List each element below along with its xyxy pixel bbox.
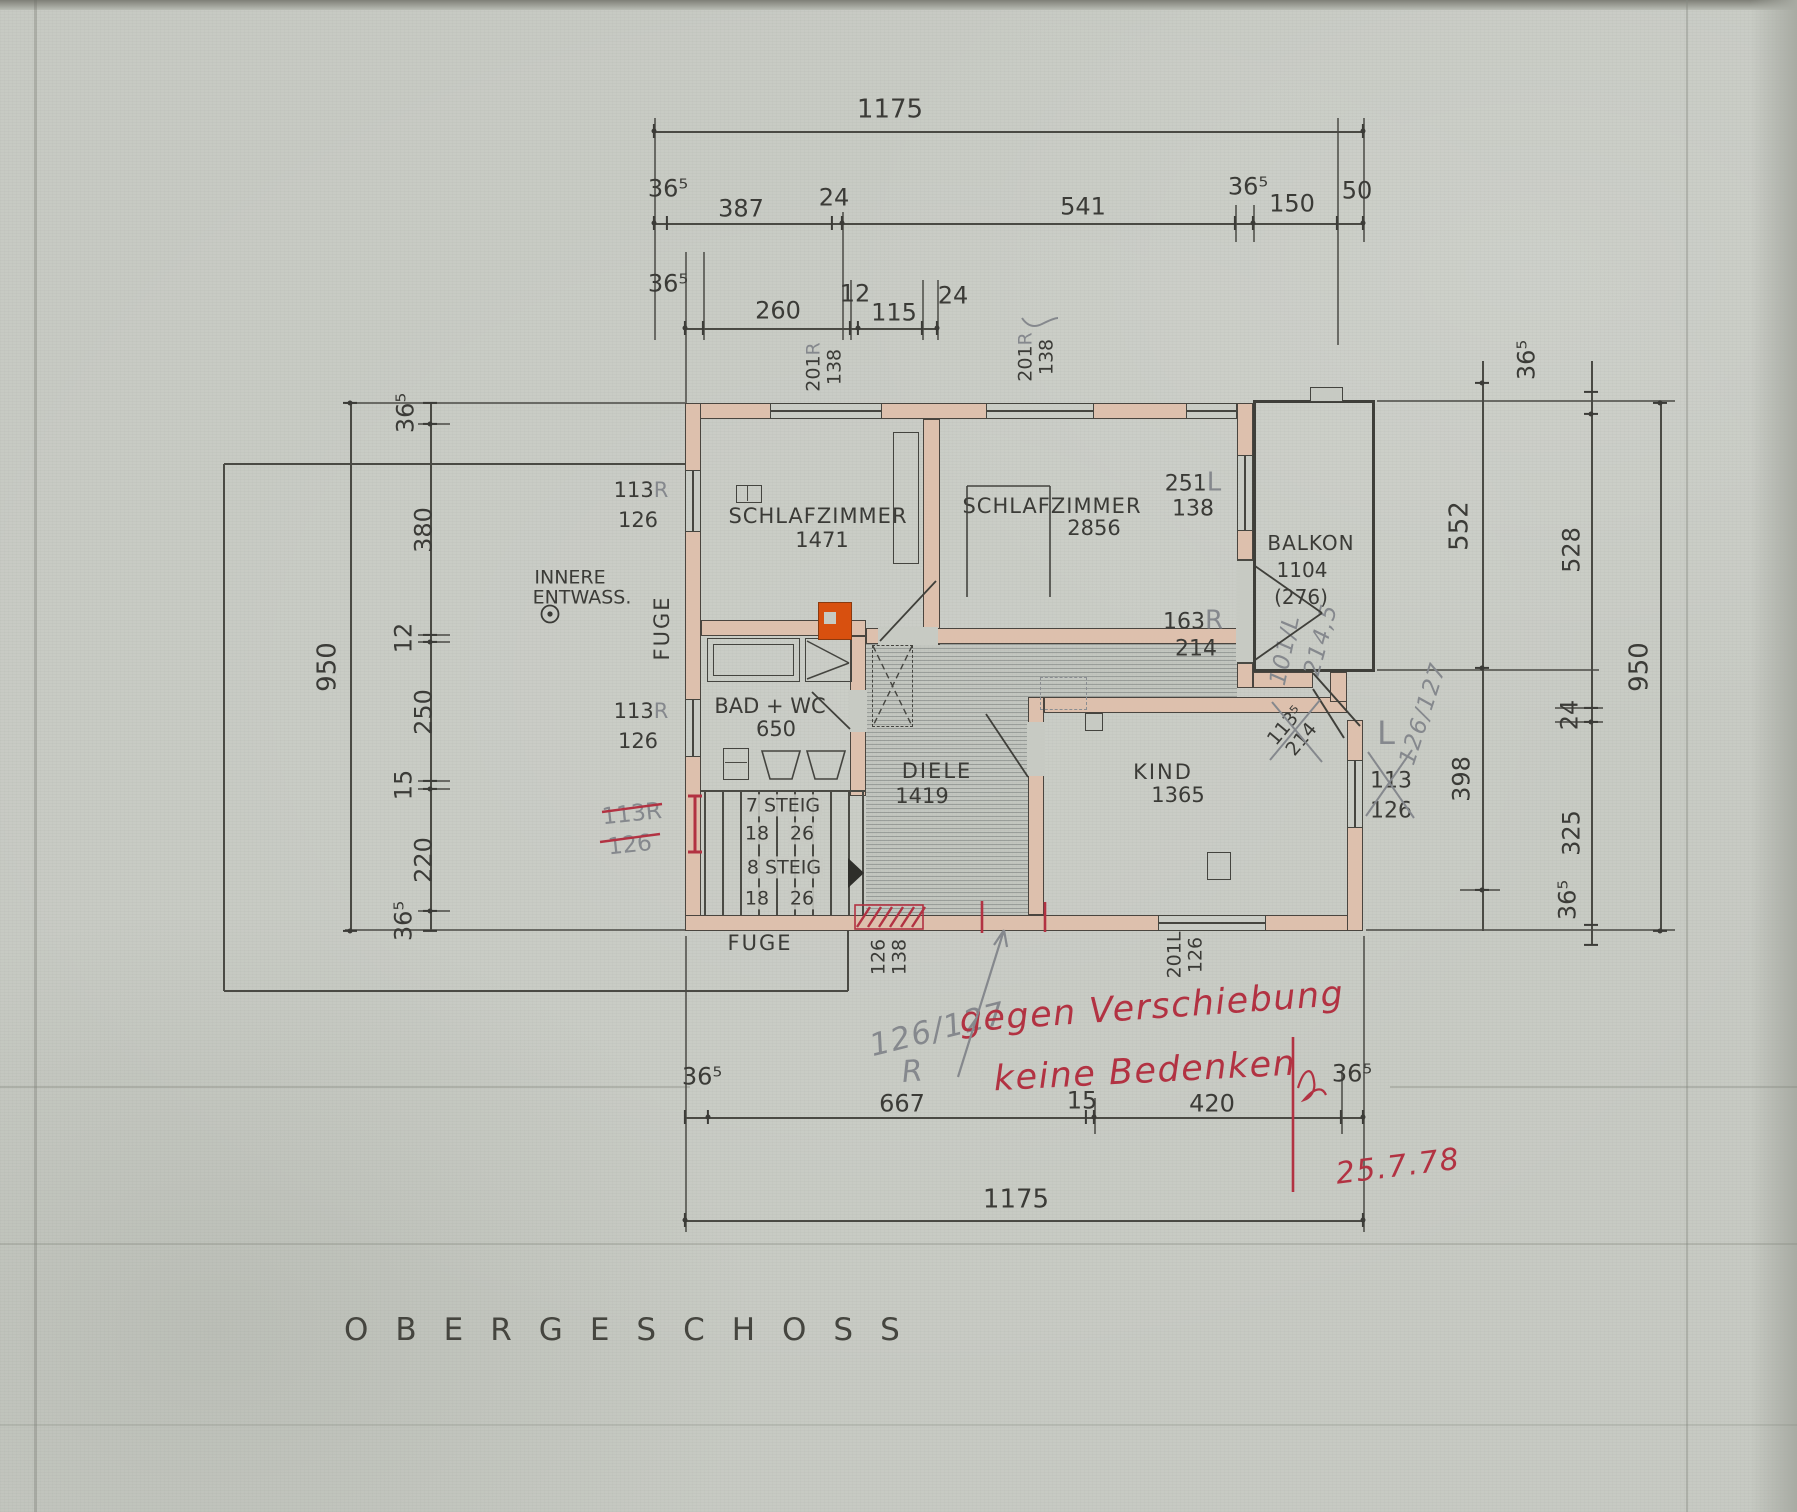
stair-tread [848,790,850,915]
ext-line [1377,400,1675,402]
room-label-kind: KIND [1133,761,1193,785]
dim-tick [423,402,437,404]
stairs-run1-tread: 26 [788,823,816,844]
door-jamb [1237,559,1253,561]
stair-tread [862,790,864,915]
dim-tick [921,321,923,335]
dim-tick [684,1110,686,1124]
dim-dot [428,640,433,645]
opening-label-balkon-door: 163R [1163,606,1223,635]
dim-dot [1480,381,1485,386]
dim-line-right-overall [1660,403,1662,931]
red-date: 25.7.78 [1334,1143,1462,1192]
dim-dot [428,422,433,427]
paper-crease-left [34,0,37,1512]
dim-dot [1589,412,1594,417]
stair-tread [722,790,724,915]
wall-balcony-pillar [1330,672,1347,702]
dim-tick [423,930,437,932]
dim-tick [1234,216,1236,230]
dim-dot [1361,1115,1366,1120]
stairs-run1-label: 7 STEIG [744,795,822,816]
dim-label: 667 [879,1091,925,1118]
opening-label-left-window-1: 113R [614,479,669,503]
dim-line-right-inner [1482,361,1484,931]
dim-dot [935,326,940,331]
dim-dot [1361,129,1366,134]
dim-label: 24 [938,283,969,310]
dim-label: 36⁵ [393,393,420,433]
dim-label: 552 [1445,501,1474,551]
dim-tick [702,321,704,335]
toilet-line [725,762,747,763]
opening-size-right-window: 126 [1370,800,1412,825]
window-top-1 [770,403,882,419]
room-area-schlafzimmer2: 2856 [1067,517,1120,541]
opening-label-sz2-window: 251L [1165,468,1222,497]
dim-label: 36⁵ [648,176,688,203]
washbasin-2 [807,751,845,779]
room-label-schlafzimmer1: SCHLAFZIMMER [728,505,907,529]
dim-label: 24 [819,185,850,212]
kind-fixture [1207,852,1231,880]
dim-tick [1336,216,1338,230]
shower [805,638,852,682]
opening-label-top-window-2: 201R 138 [1016,332,1059,381]
shaft-dashed [872,645,913,727]
dim-tick [831,216,833,230]
dim-label: 950 [313,642,342,692]
door-gap-balkon [1236,560,1254,663]
ext-line [1366,929,1675,931]
dim-dot [840,221,845,226]
pencil-dashed-box [1040,677,1087,710]
dim-dot [1092,1115,1097,1120]
fuge-label-bottom: FUGE [728,932,793,956]
door-gap-kind [1027,722,1045,776]
dim-label: 15 [391,770,418,801]
dim-label: 220 [411,837,438,883]
dim-dot [1589,720,1594,725]
dim-dot [683,326,688,331]
dim-label: 325 [1559,810,1586,856]
window-bottom-kind [1158,915,1266,931]
stairs-top-edge [701,790,866,792]
room-area-diele: 1419 [895,785,948,809]
dim-dot [1658,929,1663,934]
crossed-label-size: 126 [607,831,653,861]
dim-tick [1340,1110,1342,1124]
dim-dot [652,221,657,226]
stairs-run1-rise: 18 [743,823,771,844]
dim-dot [348,401,353,406]
stair-tread [830,790,832,915]
dim-dot [1480,888,1485,893]
red-note-line1: gegen Verschiebung [958,975,1345,1041]
dim-line-right-outer [1591,361,1593,945]
flue-box-sz1 [736,485,762,503]
room-label-balkon: BALKON [1267,532,1354,554]
bathtub-inner [713,644,794,676]
dim-label: 36⁵ [648,271,688,298]
dim-line-left-overall [350,403,352,931]
lower-floor-outline [224,464,848,991]
dim-label: 260 [755,298,801,325]
dim-dot [652,129,657,134]
stair-tread [704,790,706,915]
pencil-note-r: R [900,1054,925,1089]
dim-tick [423,634,437,636]
window-top-3 [1186,403,1237,419]
paper-crease-right [1686,0,1688,1512]
dim-label: 36⁵ [1555,880,1582,920]
fuge-label-vertical: FUGE [651,596,675,661]
dim-label: 115 [871,300,917,327]
stairs-run2-rise: 18 [743,888,771,909]
ext-line [1377,669,1599,671]
dim-tick [1584,944,1598,946]
stair-tread [740,790,742,915]
flue-box-divider [747,486,748,501]
door-jamb [1237,662,1253,664]
door-gap-bad [849,690,867,732]
dim-line-bottom-chain [685,1117,1363,1119]
dim-dot [683,1218,688,1223]
washbasin-1 [762,751,800,779]
dim-label: 250 [411,689,438,735]
window-top-2 [986,403,1094,419]
crossed-label-code: 113R [601,799,663,831]
dim-label: 36⁵ [1332,1061,1372,1088]
dim-label: 36⁵ [1228,174,1268,201]
dim-label: 1175 [983,1185,1049,1214]
room-area-balkon: 1104 [1277,559,1328,581]
floor-plan-sheet: 1175 36⁵ 387 24 541 36⁵ 150 50 36⁵ 260 1… [0,0,1797,1512]
opening-size-left-window-1: 126 [618,509,658,533]
innere-entwass-line2: ENTWASS. [533,587,632,608]
dim-dot [706,1115,711,1120]
paper-fold-line-2 [1390,1086,1797,1088]
dim-label: 541 [1060,194,1106,221]
dim-line-top-overall [654,131,1363,133]
dim-dot [348,929,353,934]
red-flourish [1298,1071,1326,1100]
dim-label: 1175 [857,95,923,124]
toilet [723,748,749,780]
dim-line-top-row [654,223,1363,225]
window-sz2-right [1237,455,1253,531]
dim-label: 12 [391,623,418,654]
pencil-squiggle [1022,318,1058,326]
balcony-notch [1310,387,1343,402]
paper-edge-top [0,0,1797,10]
paper-fold-line-4 [0,1424,1797,1426]
red-note-line2: keine Bedenken [993,1045,1297,1100]
room-label-schlafzimmer2: SCHLAFZIMMER [962,495,1141,519]
dim-dot [1480,666,1485,671]
dim-label: 387 [718,196,764,223]
opening-label-right-window: 113 [1370,770,1412,795]
room-label-bad: BAD + WC [714,695,825,719]
opening-label-left-window-2: 113R [614,700,669,724]
wall-post [1085,713,1103,731]
dim-label: 380 [411,507,438,553]
dim-dot [1361,1218,1366,1223]
dim-label: 150 [1269,191,1315,218]
dim-dot [428,787,433,792]
wall-schlaf-divider [923,419,940,645]
dim-line-bottom-overall [685,1220,1363,1222]
paper-fold-line-3 [0,1243,1797,1245]
room-area-bad: 650 [756,718,796,742]
stairs-run2-label: 8 STEIG [745,857,823,878]
dim-dot [1251,221,1256,226]
opening-size-balkon-door: 214 [1175,638,1217,663]
dim-label: 36⁵ [391,901,418,941]
stairs-run2-tread: 26 [788,888,816,909]
dim-dot [1658,401,1663,406]
dim-line-top-sub [685,328,937,330]
dim-tick [1584,391,1598,393]
paper-edge-right [1750,0,1797,1512]
room-area-kind: 1365 [1151,784,1204,808]
dim-dot [856,326,861,331]
dim-label: 24 [1557,700,1584,731]
dim-tick [1584,707,1598,709]
door-gap-sz2 [878,627,938,645]
dim-label: 50 [1342,178,1373,205]
dim-label: 36⁵ [1514,340,1541,380]
dim-label: 420 [1189,1091,1235,1118]
window-left-2 [685,699,701,757]
window-right-lower [1347,760,1363,828]
dim-tick [666,216,668,230]
dim-label: 398 [1449,756,1476,802]
wardrobe-sz1 [893,432,919,564]
sheet-title: OBERGESCHOSS [344,1312,927,1348]
room-area-schlafzimmer1: 1471 [795,529,848,553]
paper-fold-line-1 [0,1086,690,1088]
dim-label: 12 [840,281,871,308]
opening-hand-right-window: L [1377,716,1395,752]
opening-label-bottom-door: 126 138 [869,939,912,975]
ext-line [842,212,844,340]
dim-dot [428,909,433,914]
dim-tick [849,321,851,335]
opening-label-top-window-1: 201R 138 [804,342,847,391]
dim-dot [1361,221,1366,226]
drain-symbol-inner [547,611,552,616]
dim-label: 36⁵ [682,1064,722,1091]
chimney-notch [824,612,836,624]
dim-tick [1584,924,1598,926]
window-left-1 [685,470,701,532]
dim-label: 528 [1559,527,1586,573]
room-label-diele: DIELE [902,760,973,784]
pencil-note-126127-right: 126/127 [1395,660,1452,769]
opening-size-left-window-2: 126 [618,730,658,754]
dim-label: 950 [1625,642,1654,692]
dim-tick [423,780,437,782]
opening-size-sz2-window: 138 [1172,498,1214,523]
opening-label-kind-door: 201L 126 [1165,932,1208,979]
ext-line [1337,118,1339,345]
